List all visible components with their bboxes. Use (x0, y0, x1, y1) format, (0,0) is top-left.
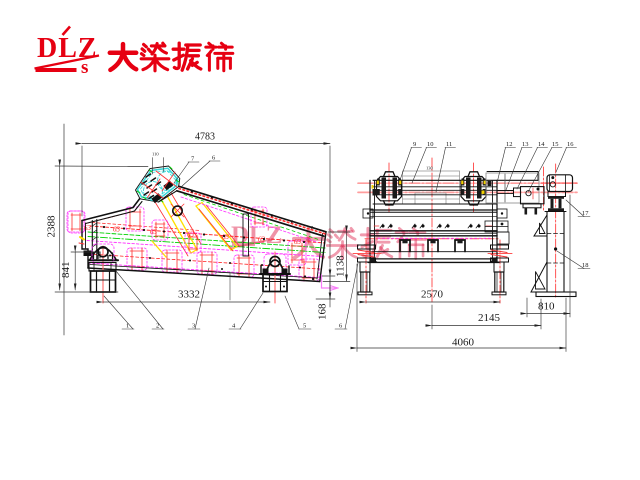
svg-text:5: 5 (303, 323, 306, 330)
svg-text:130: 130 (426, 166, 434, 171)
svg-text:12: 12 (506, 141, 513, 148)
svg-text:841: 841 (60, 262, 72, 279)
svg-text:1: 1 (126, 323, 129, 330)
svg-text:63: 63 (294, 238, 302, 246)
svg-text:18: 18 (582, 262, 589, 269)
svg-text:3332: 3332 (178, 289, 200, 301)
svg-text:9: 9 (413, 141, 416, 148)
svg-text:2570: 2570 (421, 289, 444, 301)
svg-text:63: 63 (113, 226, 121, 234)
svg-text:10: 10 (427, 141, 434, 148)
svg-text:110: 110 (152, 152, 159, 157)
svg-text:17: 17 (582, 210, 589, 217)
svg-text:s: s (81, 57, 88, 78)
svg-text:63: 63 (222, 233, 230, 241)
svg-text:DLZ: DLZ (37, 33, 98, 64)
svg-text:810: 810 (538, 301, 555, 313)
svg-text:2388: 2388 (46, 215, 58, 238)
svg-text:1138: 1138 (335, 255, 347, 277)
svg-text:15: 15 (552, 141, 559, 148)
svg-text:16: 16 (567, 141, 574, 148)
svg-text:4060: 4060 (452, 337, 475, 349)
svg-text:63: 63 (187, 231, 195, 239)
svg-text:4783: 4783 (195, 131, 215, 143)
svg-text:13: 13 (522, 141, 529, 148)
svg-text:11: 11 (446, 141, 452, 148)
svg-text:63: 63 (150, 228, 158, 236)
svg-text:2145: 2145 (478, 312, 501, 324)
svg-text:3: 3 (192, 323, 195, 330)
svg-text:168: 168 (317, 303, 329, 320)
svg-text:2: 2 (156, 323, 159, 330)
svg-text:14: 14 (538, 141, 545, 148)
